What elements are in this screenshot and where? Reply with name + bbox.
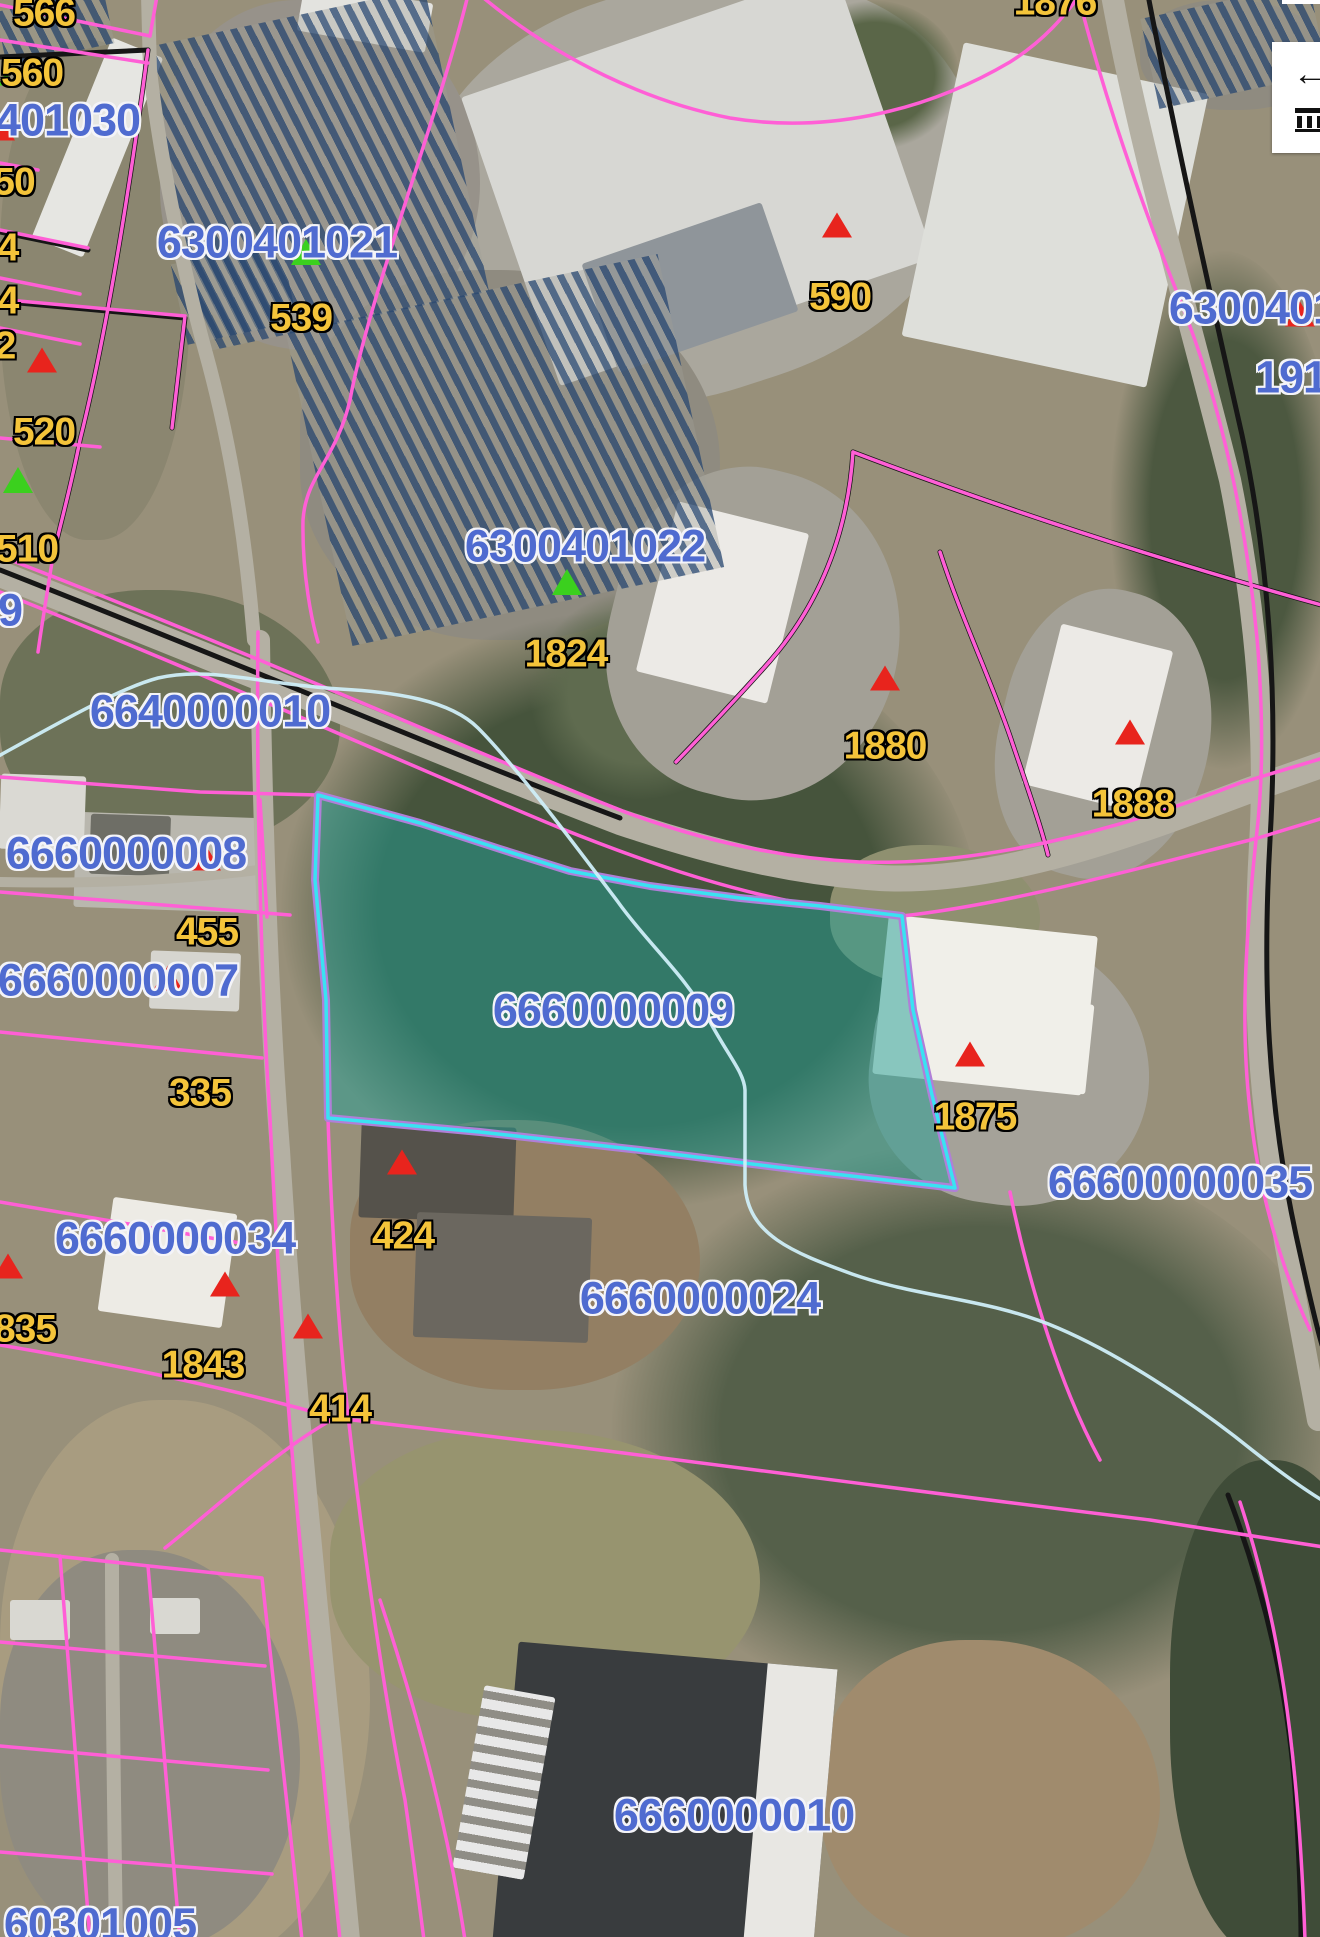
parcel-id-label[interactable]: 6640000010: [90, 689, 330, 734]
address-label: 835: [0, 1310, 56, 1349]
building-icon: [1295, 108, 1320, 132]
address-label: 539: [270, 299, 332, 338]
parcel-id-label[interactable]: 9: [0, 588, 22, 633]
address-label: 590: [809, 278, 871, 317]
address-label: 560: [1, 54, 63, 93]
address-label: 1876: [1014, 0, 1097, 22]
parcel-id-label[interactable]: 66600000035: [1048, 1160, 1312, 1205]
address-label: 414: [309, 1390, 371, 1429]
selected-parcel-id-label[interactable]: 6660000009: [493, 988, 733, 1033]
left-arrow-icon: ←: [1293, 55, 1320, 94]
parcel-id-label[interactable]: 1919: [1255, 355, 1320, 400]
address-label: 1824: [525, 635, 608, 674]
parcel-id-label[interactable]: 6660000008: [6, 831, 246, 876]
address-label: 2: [0, 327, 15, 366]
address-label: 1843: [162, 1346, 245, 1385]
parcel-id-label[interactable]: 6300401022: [465, 524, 705, 569]
address-label: 4: [0, 282, 18, 321]
address-label: 4: [0, 229, 18, 268]
basemap-button[interactable]: [1292, 102, 1320, 138]
parcel-id-label[interactable]: 6300401021: [157, 220, 397, 265]
address-label: 50: [0, 163, 35, 202]
gis-map-canvas[interactable]: 4010306300401021630040102266400000106660…: [0, 0, 1320, 1937]
parcel-id-label[interactable]: 60301005: [4, 1902, 196, 1937]
address-label: 335: [169, 1074, 231, 1113]
address-label: 424: [372, 1217, 434, 1256]
parcel-id-label[interactable]: 6660000007: [0, 958, 238, 1003]
parcel-id-label[interactable]: 6660000010: [614, 1793, 854, 1838]
address-label: 566: [13, 0, 75, 33]
pan-left-button[interactable]: ←: [1292, 56, 1320, 92]
address-label: 455: [176, 913, 238, 952]
address-label: 1880: [844, 727, 927, 766]
address-label: 510: [0, 530, 58, 569]
parcel-id-label[interactable]: 6660000034: [55, 1216, 295, 1261]
parcel-id-label[interactable]: 6300401: [1169, 286, 1320, 331]
address-label: 520: [13, 413, 75, 452]
map-toolbar-edge: [1282, 0, 1320, 4]
parcel-id-label[interactable]: 6660000024: [580, 1276, 820, 1321]
map-toolbar[interactable]: ←: [1272, 42, 1320, 153]
map-labels: 4010306300401021630040102266400000106660…: [0, 0, 1320, 1937]
parcel-id-label[interactable]: 401030: [0, 98, 140, 143]
address-label: 1888: [1092, 785, 1175, 824]
address-label: 1875: [934, 1098, 1017, 1137]
